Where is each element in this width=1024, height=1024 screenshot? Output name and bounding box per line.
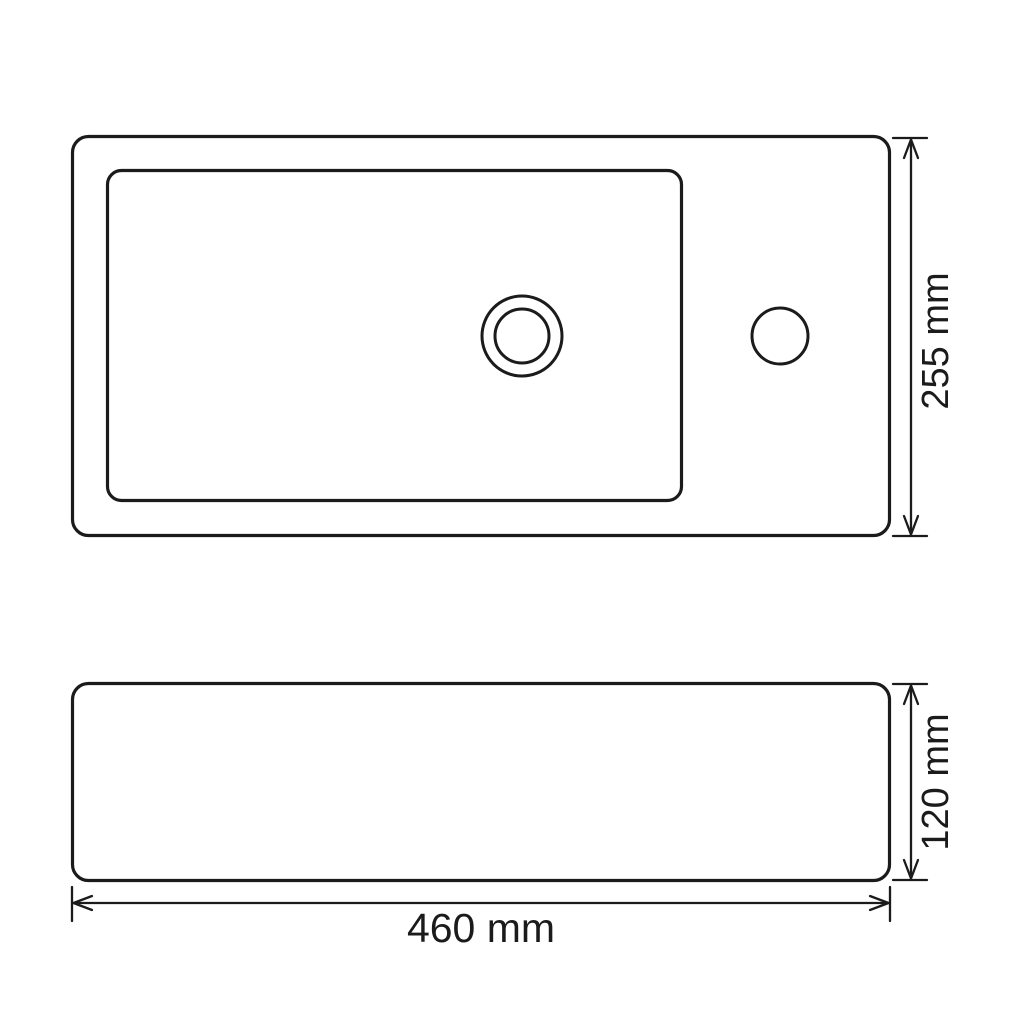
top-view xyxy=(73,137,890,536)
drain-hole-inner-ring xyxy=(495,309,549,363)
sink-dimension-diagram: 255 mm 120 mm 460 mm xyxy=(0,0,1024,1024)
faucet-hole xyxy=(752,308,808,364)
basin-recess-outline xyxy=(108,171,682,501)
dimension-width: 460 mm xyxy=(72,887,890,951)
dimension-height: 120 mm xyxy=(893,684,957,880)
front-view xyxy=(73,684,890,881)
dimension-depth: 255 mm xyxy=(893,138,957,536)
sink-front-outline xyxy=(73,684,890,881)
technical-drawing-page: 255 mm 120 mm 460 mm xyxy=(0,0,1024,1024)
height-dimension-label: 120 mm xyxy=(915,713,957,850)
depth-dimension-label: 255 mm xyxy=(915,272,957,409)
width-dimension-label: 460 mm xyxy=(407,905,555,951)
